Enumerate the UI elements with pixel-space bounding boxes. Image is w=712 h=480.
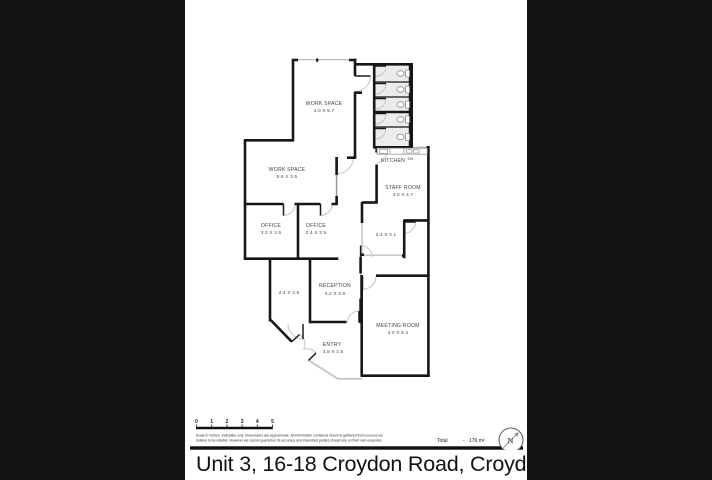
room-dims-entry: 3.5 X 3.5 bbox=[323, 349, 344, 354]
room-dims-office-2: 2.4 X 3.5 bbox=[306, 230, 327, 235]
room-dims-staff-room: 3.0 X 4.7 bbox=[393, 192, 414, 197]
scale-tick-0: 0 bbox=[195, 419, 198, 425]
room-label-reception: RECEPTION bbox=[319, 283, 351, 289]
room-dims-office-1: 3.3 X 3.5 bbox=[261, 230, 282, 235]
room-label-meeting-room: MEETING ROOM bbox=[376, 323, 419, 329]
room-dims-corridor: 2.4 X 3.9 bbox=[279, 290, 300, 295]
scale-tick-1: 1 bbox=[210, 419, 213, 425]
room-dims-side-room: 2.4 X 3.1 bbox=[376, 232, 397, 237]
room-dims-reception: 3.2 X 3.9 bbox=[325, 291, 346, 296]
screenshot-root: { "title": "Unit 3, 16-18 Croydon Road, … bbox=[0, 0, 712, 480]
floorplan-page: WORK SPACE 4.0 X 5.7 WORK SPACE 5.6 X 3.… bbox=[185, 0, 527, 480]
room-label-staff-room: STAFF ROOM bbox=[385, 185, 421, 191]
total-separator: - bbox=[463, 438, 465, 444]
room-dims-workspace-left: 5.6 X 3.6 bbox=[277, 174, 298, 179]
room-label-office-2: OFFICE bbox=[306, 223, 327, 229]
compass-n-label: N bbox=[507, 436, 513, 446]
footer-text: Scale in metres. Indicative only. Dimens… bbox=[196, 434, 485, 445]
scale-tick-4: 4 bbox=[256, 419, 259, 425]
room-label-workspace-left: WORK SPACE bbox=[269, 167, 306, 173]
room-label-kitchen: KITCHEN bbox=[381, 158, 405, 164]
room-label-office-1: OFFICE bbox=[261, 223, 282, 229]
scale-tick-5: 5 bbox=[271, 419, 274, 425]
scale-bar: 0 1 2 3 4 5 bbox=[195, 419, 274, 428]
room-dims-workspace-top: 4.0 X 5.7 bbox=[314, 108, 335, 113]
north-compass: N bbox=[499, 428, 523, 450]
disclaimer-line-1: Scale in metres. Indicative only. Dimens… bbox=[196, 434, 383, 438]
total-label: Total bbox=[437, 438, 448, 444]
page-title: Unit 3, 16-18 Croydon Road, Croydon bbox=[185, 450, 527, 477]
room-label-entry: ENTRY bbox=[323, 342, 342, 348]
scale-tick-2: 2 bbox=[226, 419, 229, 425]
disclaimer-line-2: believe to be reliable. However we canno… bbox=[196, 439, 382, 443]
scale-tick-3: 3 bbox=[241, 419, 244, 425]
room-dims-meeting-room: 4.0 X 6.4 bbox=[388, 330, 409, 335]
kitchen-counter bbox=[377, 148, 427, 154]
room-label-workspace-top: WORK SPACE bbox=[306, 101, 343, 107]
dishwasher-label: DW bbox=[408, 157, 414, 161]
total-value: 176 m² bbox=[469, 438, 485, 444]
footer-divider bbox=[190, 446, 523, 449]
floorplan-drawing: WORK SPACE 4.0 X 5.7 WORK SPACE 5.6 X 3.… bbox=[185, 0, 527, 450]
